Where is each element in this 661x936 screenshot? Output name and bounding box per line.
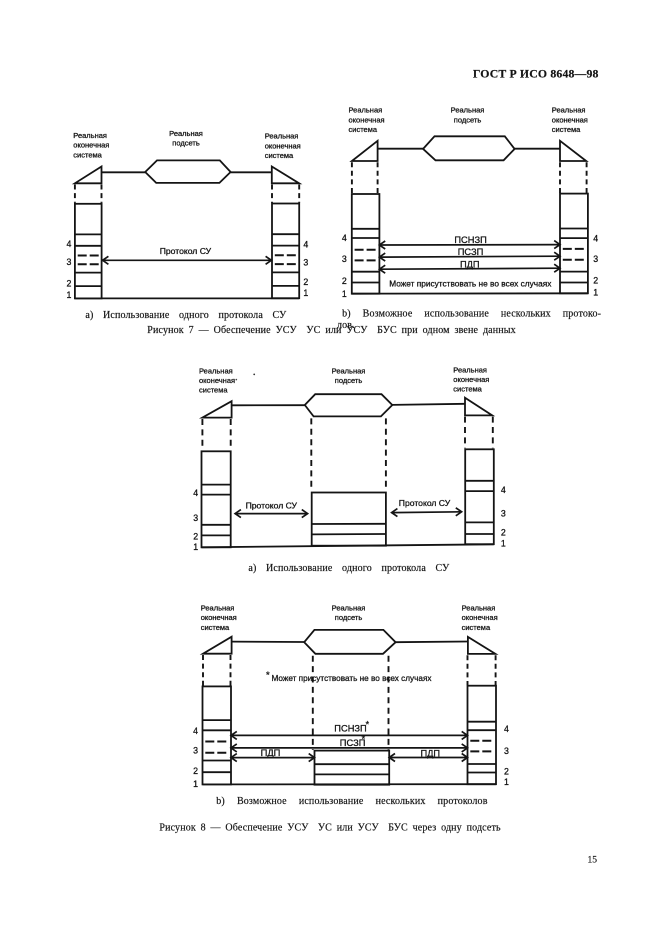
svg-text:4: 4 <box>501 485 506 495</box>
svg-text:Реальная: Реальная <box>451 106 485 115</box>
svg-text:ПСНЗП: ПСНЗП <box>334 723 366 733</box>
svg-text:2: 2 <box>67 278 72 288</box>
svg-text:ГОСТ Р ИСО 8648—98: ГОСТ Р ИСО 8648—98 <box>473 67 599 81</box>
svg-text:подсеть: подсеть <box>335 613 363 622</box>
svg-text:Протокол СУ: Протокол СУ <box>246 500 298 510</box>
svg-text:4: 4 <box>342 233 347 243</box>
svg-text:1: 1 <box>342 289 347 299</box>
svg-text:1: 1 <box>303 288 308 298</box>
svg-text:оконечная: оконечная <box>349 115 385 124</box>
svg-text:*: * <box>366 719 370 729</box>
svg-text:ПСНЗП: ПСНЗП <box>454 235 486 245</box>
svg-text:4: 4 <box>193 726 198 736</box>
svg-text:Реальная: Реальная <box>265 132 299 141</box>
svg-text:4: 4 <box>593 234 598 244</box>
svg-text:оконечная: оконечная <box>453 375 489 384</box>
svg-text:3: 3 <box>504 746 509 756</box>
svg-text:Может присутствовать не во все: Может присутствовать не во всех случаях <box>389 279 552 289</box>
svg-text:Реальная: Реальная <box>169 129 203 138</box>
svg-text:Реальная: Реальная <box>552 106 586 115</box>
svg-text:4: 4 <box>67 239 72 249</box>
svg-text:Реальная: Реальная <box>73 131 107 140</box>
svg-text:система: система <box>73 150 102 159</box>
svg-text:3: 3 <box>501 508 506 518</box>
svg-text:система: система <box>201 623 230 632</box>
svg-text:система: система <box>265 151 294 160</box>
svg-text:Протокол СУ: Протокол СУ <box>399 498 451 508</box>
svg-text:а) Использование одного проток: а) Использование одного протокола СУ <box>248 563 450 574</box>
svg-text:подсеть: подсеть <box>335 376 363 385</box>
svg-text:система: система <box>453 385 482 394</box>
svg-text:3: 3 <box>193 746 198 756</box>
svg-text:2: 2 <box>504 766 509 776</box>
svg-text:2: 2 <box>193 766 198 776</box>
svg-text:1: 1 <box>193 779 198 789</box>
svg-text:1: 1 <box>67 290 72 300</box>
svg-text:ПСЗП: ПСЗП <box>458 247 484 257</box>
svg-text:4: 4 <box>303 239 308 249</box>
svg-text:оконечная: оконечная <box>462 613 498 622</box>
svg-text:1: 1 <box>193 542 198 552</box>
svg-text:3: 3 <box>303 258 308 268</box>
svg-text:ПДП: ПДП <box>261 748 281 758</box>
svg-text:Реальная: Реальная <box>199 367 233 376</box>
svg-text:оконечная: оконечная <box>73 141 109 150</box>
svg-text:2: 2 <box>342 276 347 286</box>
svg-text:2: 2 <box>593 276 598 286</box>
svg-text:4: 4 <box>193 488 198 498</box>
svg-text:Реальная: Реальная <box>332 367 366 376</box>
svg-text:оконечная: оконечная <box>552 115 588 124</box>
svg-text:1: 1 <box>593 288 598 298</box>
svg-text:3: 3 <box>67 257 72 267</box>
svg-text:*: * <box>266 670 270 681</box>
svg-text:Может присутствовать не во все: Может присутствовать не во всех случаях <box>272 674 432 683</box>
svg-text:b) Возможное использование нес: b) Возможное использование нескольких пр… <box>216 796 488 807</box>
svg-text:2: 2 <box>193 532 198 542</box>
svg-text:а) Использование одного проток: а) Использование одного протокола СУ <box>85 310 287 321</box>
svg-text:3: 3 <box>593 254 598 264</box>
svg-text:оконечная: оконечная <box>199 376 235 385</box>
svg-text:система: система <box>462 623 491 632</box>
svg-text:подсеть: подсеть <box>172 139 200 148</box>
svg-text:Реальная: Реальная <box>453 366 487 375</box>
svg-text:система: система <box>199 386 228 395</box>
svg-text:4: 4 <box>504 724 509 734</box>
svg-text:Реальная: Реальная <box>201 604 235 613</box>
svg-text:система: система <box>552 125 581 134</box>
svg-text:1: 1 <box>501 538 506 548</box>
svg-text:Реальная: Реальная <box>349 106 383 115</box>
svg-text:2: 2 <box>501 527 506 537</box>
svg-text:оконечная: оконечная <box>265 141 301 150</box>
svg-text:система: система <box>349 125 378 134</box>
svg-text:b) Возможное использование нес: b) Возможное использование нескольких пр… <box>342 308 601 319</box>
svg-text:Рисунок 7 — Обеспечение УСУ У: Рисунок 7 — Обеспечение УСУ УС или УСУ Б… <box>147 325 516 336</box>
svg-text:Реальная: Реальная <box>462 604 496 613</box>
svg-text:оконечная: оконечная <box>201 613 237 622</box>
svg-text:подсеть: подсеть <box>454 115 482 124</box>
svg-text:1: 1 <box>504 777 509 787</box>
svg-text:3: 3 <box>342 254 347 264</box>
svg-text:3: 3 <box>193 513 198 523</box>
svg-text:Реальная: Реальная <box>332 604 366 613</box>
svg-text:15: 15 <box>588 855 598 865</box>
svg-text:Протокол СУ: Протокол СУ <box>160 246 212 256</box>
svg-text:*: * <box>362 734 366 744</box>
svg-text:Рисунок 8 — Обеспечение УСУ У: Рисунок 8 — Обеспечение УСУ УС или УСУ Б… <box>159 823 501 834</box>
svg-text:2: 2 <box>303 277 308 287</box>
